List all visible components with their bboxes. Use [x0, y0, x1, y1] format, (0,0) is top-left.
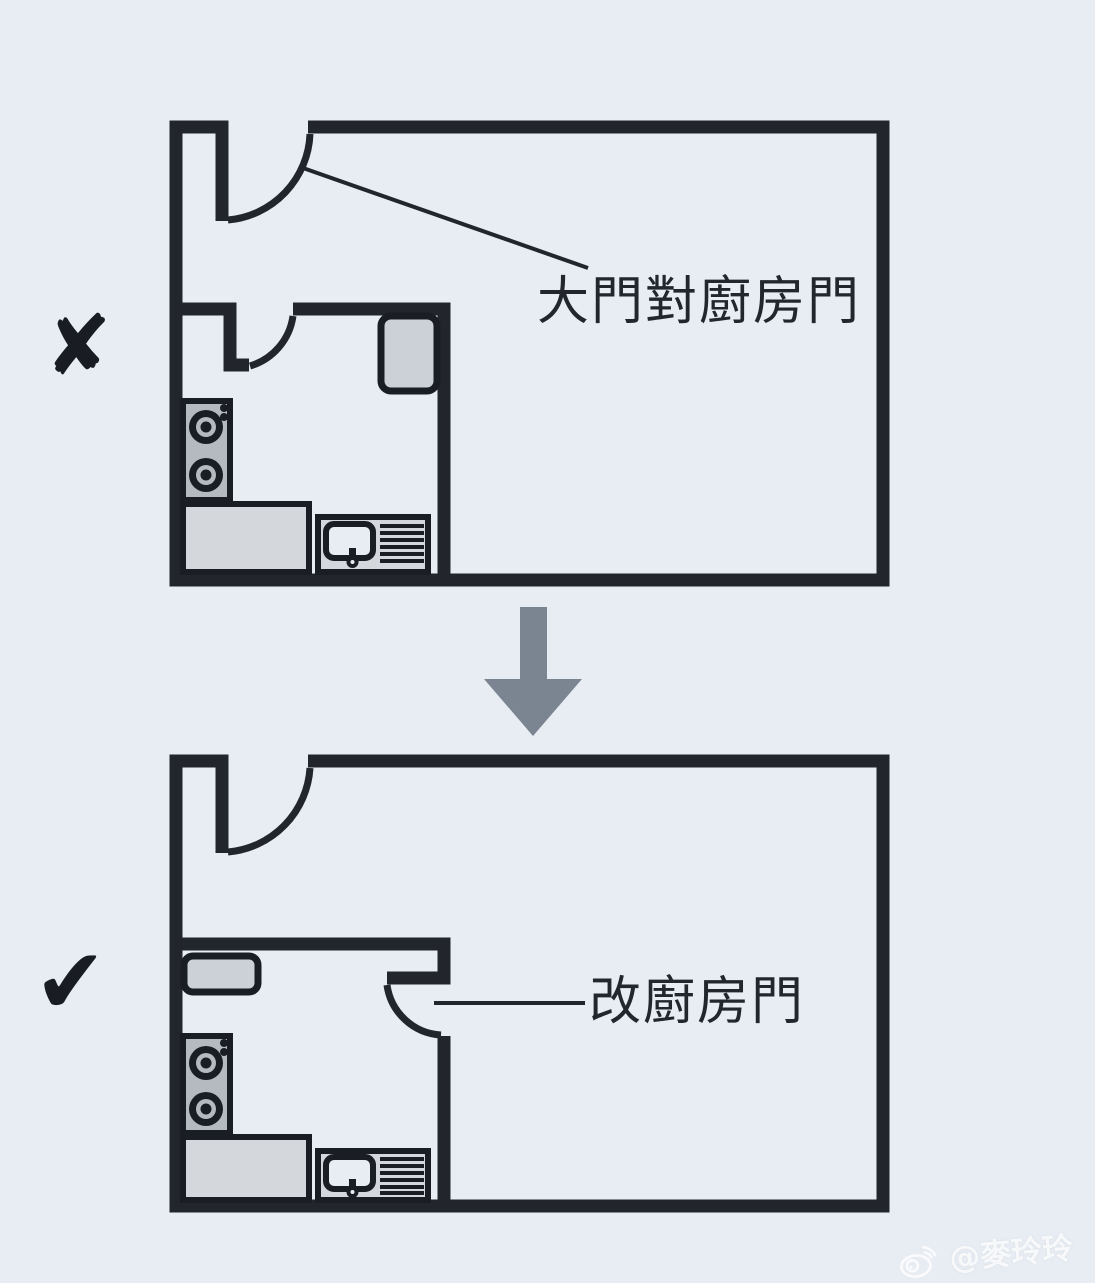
after-plan-label: 改廚房門 — [589, 974, 805, 1031]
stove — [183, 1036, 230, 1133]
kitchen-door-arc — [387, 985, 441, 1035]
floor-plan-before — [176, 127, 883, 580]
stove — [183, 401, 230, 500]
correct-mark-icon: ✔ — [32, 936, 110, 1028]
sink-unit — [318, 1151, 428, 1200]
kitchen-door-arc — [250, 316, 293, 366]
kitchen-counter — [183, 1137, 309, 1200]
weibo-icon — [895, 1235, 944, 1281]
kitchen-counter — [183, 504, 309, 572]
main-door-arc — [228, 134, 310, 220]
wrong-mark-icon: ✘ — [43, 305, 115, 389]
before-plan-label: 大門對廚房門 — [537, 274, 861, 331]
label-pointer-line — [303, 168, 588, 268]
kitchen-wall-left — [176, 309, 249, 365]
fridge — [184, 956, 258, 992]
fridge — [381, 316, 437, 391]
feng-shui-floorplan-diagram — [0, 0, 1095, 1280]
down-arrow-icon — [484, 607, 582, 736]
sink-unit — [318, 517, 428, 572]
main-door-arc — [228, 768, 310, 852]
